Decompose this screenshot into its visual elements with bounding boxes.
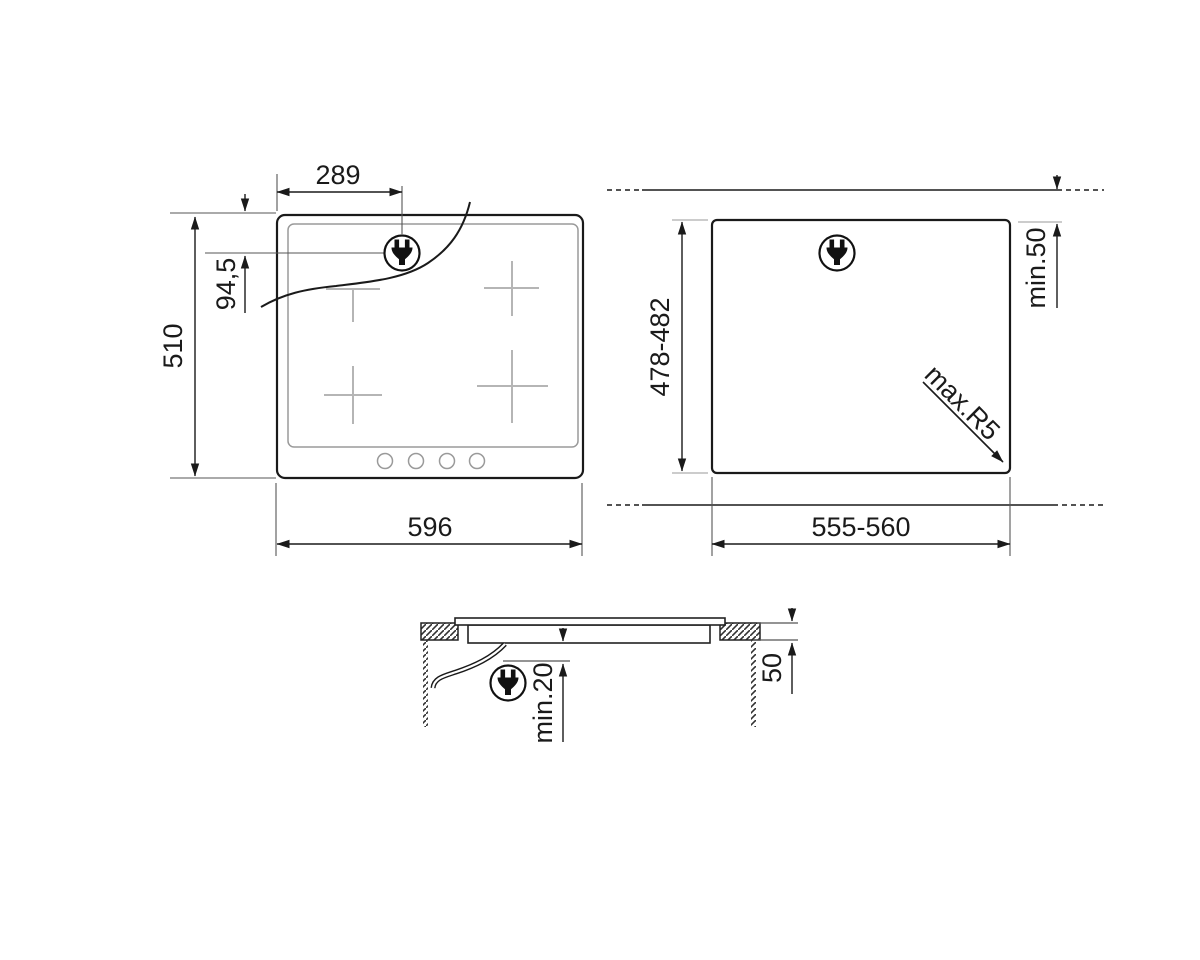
cutout-outline	[712, 220, 1010, 473]
installation-section-view: min.20 50	[421, 608, 798, 744]
hob-top-view: 289 94,5 510 596	[158, 160, 583, 556]
power-plug-icon	[820, 236, 855, 271]
hob-glass-section	[455, 618, 725, 625]
dim-hob-height: 510	[158, 217, 195, 476]
dim-cutout-height-label: 478-482	[645, 297, 675, 396]
power-plug-icon	[385, 236, 420, 271]
dim-hob-width-label: 596	[407, 512, 452, 542]
dim-plug-offset-x-label: 289	[315, 160, 360, 190]
hob-body-section	[468, 625, 710, 643]
dim-cutout-height: 478-482	[645, 220, 708, 473]
dim-hob-height-label: 510	[158, 323, 188, 368]
hob-outline	[277, 215, 583, 478]
dim-cutout-width-label: 555-560	[811, 512, 910, 542]
dim-worktop-thickness: 50	[753, 608, 798, 694]
worktop-cutout-view: 478-482 min.50 max.R5 555-560	[607, 175, 1104, 556]
dim-worktop-thickness-label: 50	[757, 653, 787, 683]
dim-hob-width: 596	[276, 483, 582, 556]
cabinet-break-line-right	[751, 640, 756, 727]
dim-rear-clearance: min.50	[1018, 175, 1062, 309]
power-plug-icon	[491, 666, 526, 701]
installation-diagram: 289 94,5 510 596	[0, 0, 1200, 960]
dim-plug-offset-y-label: 94,5	[211, 258, 241, 311]
dim-rear-clearance-label: min.50	[1021, 227, 1051, 308]
cabinet-break-line-left	[423, 640, 428, 727]
dim-under-clearance-label: min.20	[528, 662, 558, 743]
worktop-section-left	[421, 623, 458, 640]
worktop-section-right	[720, 623, 760, 640]
dim-cutout-width: 555-560	[712, 477, 1010, 556]
installation-diagram-page: 289 94,5 510 596	[0, 0, 1200, 960]
